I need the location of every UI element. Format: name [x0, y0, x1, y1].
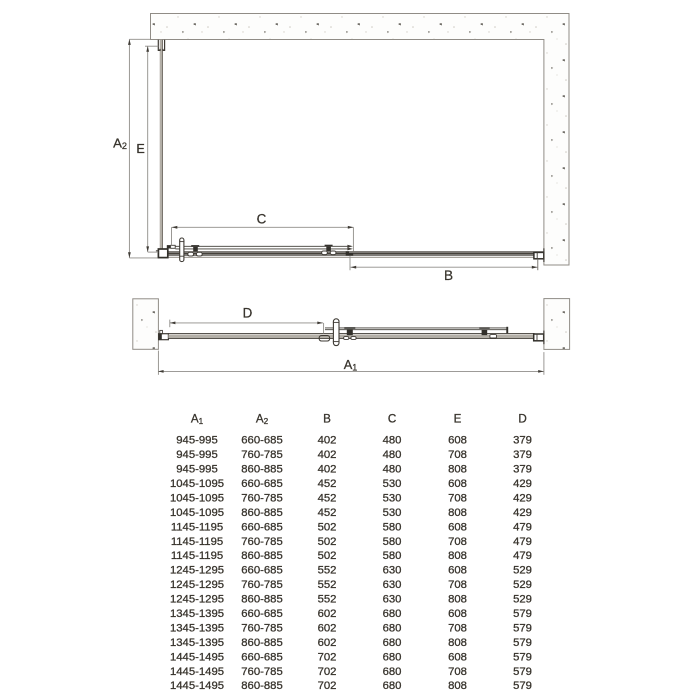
svg-text:860-885: 860-885 [241, 637, 282, 649]
svg-text:D: D [518, 412, 526, 425]
svg-text:379: 379 [513, 464, 532, 476]
svg-text:402: 402 [318, 464, 337, 476]
svg-text:608: 608 [448, 608, 467, 620]
svg-text:660-685: 660-685 [241, 521, 282, 533]
svg-text:608: 608 [448, 651, 467, 663]
svg-text:760-785: 760-785 [241, 449, 282, 461]
svg-text:552: 552 [318, 565, 337, 577]
svg-text:1345-1395: 1345-1395 [170, 637, 224, 649]
svg-text:680: 680 [383, 680, 402, 692]
svg-text:452: 452 [318, 492, 337, 504]
svg-text:808: 808 [448, 550, 467, 562]
svg-text:660-685: 660-685 [241, 651, 282, 663]
svg-text:702: 702 [318, 651, 337, 663]
svg-text:1045-1095: 1045-1095 [170, 478, 224, 490]
svg-text:530: 530 [383, 478, 402, 490]
svg-text:1245-1295: 1245-1295 [170, 594, 224, 606]
svg-text:760-785: 760-785 [241, 492, 282, 504]
svg-text:1445-1495: 1445-1495 [170, 680, 224, 692]
svg-text:529: 529 [513, 594, 532, 606]
svg-text:1145-1195: 1145-1195 [171, 536, 223, 548]
svg-text:708: 708 [448, 492, 467, 504]
svg-text:402: 402 [318, 435, 337, 447]
svg-text:680: 680 [383, 651, 402, 663]
svg-text:760-785: 760-785 [241, 536, 282, 548]
svg-text:630: 630 [383, 594, 402, 606]
svg-text:429: 429 [513, 507, 532, 519]
svg-text:579: 579 [513, 651, 532, 663]
svg-text:1345-1395: 1345-1395 [170, 608, 224, 620]
svg-text:1445-1495: 1445-1495 [170, 666, 224, 678]
svg-text:552: 552 [318, 579, 337, 591]
svg-text:1345-1395: 1345-1395 [170, 623, 224, 635]
svg-text:680: 680 [383, 637, 402, 649]
svg-text:808: 808 [448, 464, 467, 476]
svg-text:708: 708 [448, 449, 467, 461]
svg-text:379: 379 [513, 449, 532, 461]
svg-text:1045-1095: 1045-1095 [170, 507, 224, 519]
svg-text:760-785: 760-785 [241, 666, 282, 678]
svg-text:E: E [136, 142, 144, 156]
svg-text:502: 502 [318, 536, 337, 548]
svg-text:602: 602 [318, 623, 337, 635]
svg-text:B: B [323, 412, 331, 425]
svg-text:1045-1095: 1045-1095 [170, 492, 224, 504]
svg-text:708: 708 [448, 536, 467, 548]
svg-text:860-885: 860-885 [241, 594, 282, 606]
svg-text:579: 579 [513, 623, 532, 635]
svg-text:860-885: 860-885 [241, 464, 282, 476]
svg-text:660-685: 660-685 [241, 608, 282, 620]
svg-text:860-885: 860-885 [241, 680, 282, 692]
svg-text:860-885: 860-885 [241, 507, 282, 519]
svg-text:E: E [454, 412, 462, 425]
svg-text:C: C [257, 211, 267, 226]
svg-text:680: 680 [383, 608, 402, 620]
svg-text:808: 808 [448, 507, 467, 519]
svg-text:608: 608 [448, 565, 467, 577]
svg-text:608: 608 [448, 435, 467, 447]
svg-text:1245-1295: 1245-1295 [170, 579, 224, 591]
svg-text:402: 402 [318, 449, 337, 461]
svg-text:D: D [243, 306, 253, 321]
svg-text:480: 480 [383, 449, 402, 461]
svg-text:479: 479 [513, 550, 532, 562]
svg-text:808: 808 [448, 594, 467, 606]
svg-text:680: 680 [383, 623, 402, 635]
svg-text:479: 479 [513, 536, 532, 548]
svg-text:702: 702 [318, 666, 337, 678]
svg-text:452: 452 [318, 478, 337, 490]
svg-text:1145-1195: 1145-1195 [171, 550, 223, 562]
svg-text:945-995: 945-995 [176, 449, 217, 461]
svg-text:1445-1495: 1445-1495 [170, 651, 224, 663]
svg-text:580: 580 [383, 521, 402, 533]
svg-text:429: 429 [513, 492, 532, 504]
svg-text:530: 530 [383, 507, 402, 519]
svg-text:630: 630 [383, 565, 402, 577]
svg-text:452: 452 [318, 507, 337, 519]
svg-text:529: 529 [513, 565, 532, 577]
svg-text:608: 608 [448, 478, 467, 490]
svg-text:760-785: 760-785 [241, 623, 282, 635]
svg-text:630: 630 [383, 579, 402, 591]
svg-text:680: 680 [383, 666, 402, 678]
svg-text:945-995: 945-995 [176, 435, 217, 447]
svg-text:379: 379 [513, 435, 532, 447]
svg-text:552: 552 [318, 594, 337, 606]
svg-text:708: 708 [448, 579, 467, 591]
svg-text:860-885: 860-885 [241, 550, 282, 562]
svg-text:B: B [444, 268, 453, 283]
svg-text:1145-1195: 1145-1195 [171, 521, 223, 533]
svg-text:502: 502 [318, 521, 337, 533]
svg-text:702: 702 [318, 680, 337, 692]
svg-text:602: 602 [318, 608, 337, 620]
svg-text:529: 529 [513, 579, 532, 591]
svg-text:660-685: 660-685 [241, 565, 282, 577]
svg-text:C: C [388, 412, 396, 425]
svg-text:660-685: 660-685 [241, 478, 282, 490]
svg-text:502: 502 [318, 550, 337, 562]
svg-text:429: 429 [513, 478, 532, 490]
svg-text:602: 602 [318, 637, 337, 649]
svg-text:579: 579 [513, 608, 532, 620]
svg-text:530: 530 [383, 492, 402, 504]
svg-text:479: 479 [513, 521, 532, 533]
svg-text:480: 480 [383, 464, 402, 476]
svg-text:579: 579 [513, 637, 532, 649]
svg-text:579: 579 [513, 666, 532, 678]
svg-text:945-995: 945-995 [176, 464, 217, 476]
svg-text:808: 808 [448, 637, 467, 649]
svg-text:1245-1295: 1245-1295 [170, 565, 224, 577]
svg-text:660-685: 660-685 [241, 435, 282, 447]
svg-text:579: 579 [513, 680, 532, 692]
svg-text:760-785: 760-785 [241, 579, 282, 591]
svg-text:808: 808 [448, 680, 467, 692]
svg-text:580: 580 [383, 550, 402, 562]
svg-text:608: 608 [448, 521, 467, 533]
svg-text:580: 580 [383, 536, 402, 548]
svg-text:708: 708 [448, 666, 467, 678]
svg-text:480: 480 [383, 435, 402, 447]
svg-text:708: 708 [448, 623, 467, 635]
